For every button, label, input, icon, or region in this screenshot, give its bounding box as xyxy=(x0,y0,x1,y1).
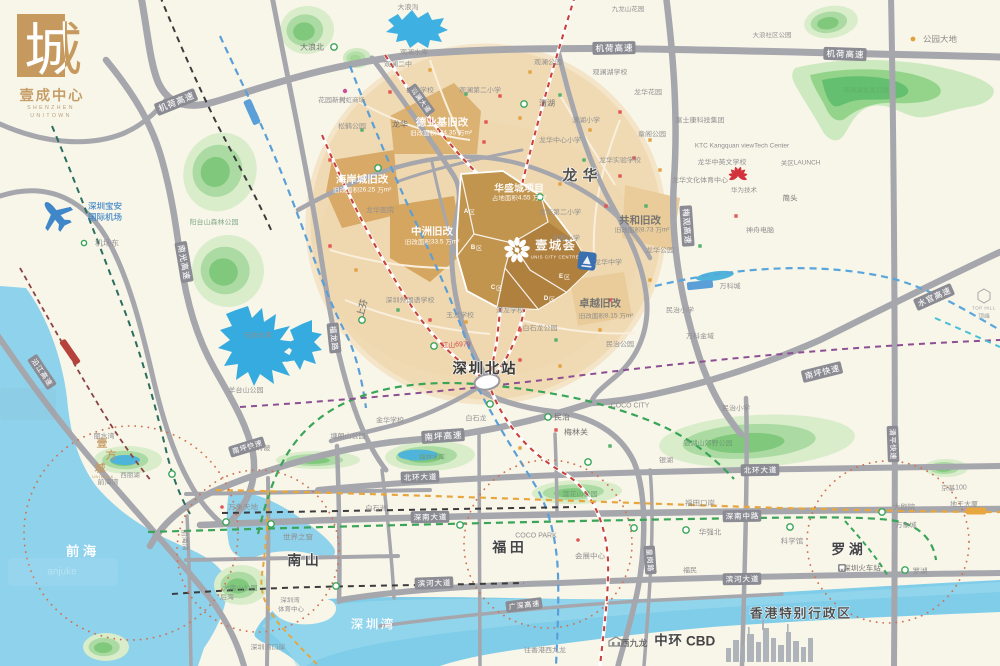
svg-text:anjuke: anjuke xyxy=(47,567,77,578)
svg-text:m²: m² xyxy=(662,227,670,234)
svg-text:134.35: 134.35 xyxy=(436,130,456,137)
svg-text:UNITOWN: UNITOWN xyxy=(30,113,72,119)
svg-text:SHENZHEN: SHENZHEN xyxy=(27,105,75,111)
svg-text:m²: m² xyxy=(626,313,634,320)
svg-text:UNIWALK: UNIWALK xyxy=(92,475,114,479)
svg-text:UNIS CITY CENTRE: UNIS CITY CENTRE xyxy=(531,255,580,260)
svg-text:8.73: 8.73 xyxy=(641,227,654,234)
svg-text:100: 100 xyxy=(955,485,967,492)
svg-text:26.25: 26.25 xyxy=(359,187,376,194)
svg-text:m²: m² xyxy=(539,195,547,202)
svg-text:CBD: CBD xyxy=(686,634,715,649)
svg-text:4.55: 4.55 xyxy=(518,195,531,202)
svg-text:COCO PARK: COCO PARK xyxy=(515,533,557,540)
svg-text:C: C xyxy=(491,285,496,291)
svg-text:KTC Kangquan viewTech Center: KTC Kangquan viewTech Center xyxy=(695,143,790,150)
svg-text:m²: m² xyxy=(465,130,473,137)
svg-text:LAUNCH: LAUNCH xyxy=(794,160,821,167)
svg-text:m²: m² xyxy=(452,239,460,246)
svg-text:6979: 6979 xyxy=(455,342,471,349)
svg-text:A: A xyxy=(464,209,469,215)
svg-text:m²: m² xyxy=(384,187,392,194)
svg-text:33.5: 33.5 xyxy=(431,239,444,246)
svg-text:8.15: 8.15 xyxy=(605,313,618,320)
svg-text:TOP HILL: TOP HILL xyxy=(972,306,996,311)
svg-text:COCO CITY: COCO CITY xyxy=(611,403,650,410)
svg-text:D: D xyxy=(544,296,549,302)
svg-text:B: B xyxy=(471,245,476,251)
svg-text:E: E xyxy=(559,274,563,280)
